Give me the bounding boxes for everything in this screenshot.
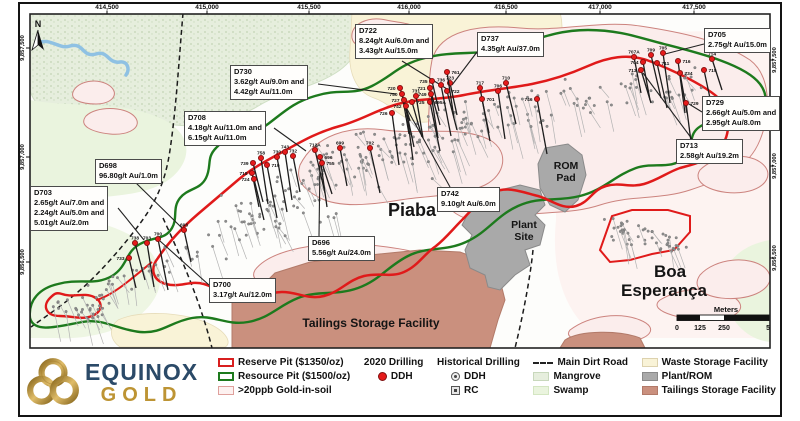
ddh-2020-label: 698 [180, 223, 188, 229]
ddh-2020-dot-715 [701, 67, 706, 72]
ddh-2020-label: 707A [628, 50, 640, 56]
ddh-2020-label: 727 [391, 98, 399, 104]
ddh-2020-label: 712A [309, 143, 321, 149]
callout-assay-line: 9.10g/t Au/6.0m [441, 199, 496, 209]
ddh-2020-label: 715 [709, 68, 717, 74]
reserve-swatch-icon [218, 358, 234, 367]
axis-label-easting: 414,500 [95, 4, 119, 11]
axis-label-easting: 416,000 [397, 4, 421, 11]
legend-column: Main Dirt RoadMangroveSwamp [533, 357, 628, 396]
axis-label-easting: 417,500 [682, 4, 706, 11]
ddh-2020-label: 706 [494, 84, 502, 90]
ddh-2020-dot-719 [264, 162, 269, 167]
north-label: N [35, 19, 42, 29]
legend-item-reserve: Reserve Pit ($1350/oz) [218, 357, 350, 368]
ddh-2020-dot-726 [389, 110, 394, 115]
ddh-2020-label: 749 [418, 92, 426, 98]
drilling-map-figure: 7337387037006987397587197187247437307327… [0, 0, 800, 421]
callout-hole-id: D713 [680, 141, 739, 151]
callout-D703: D7032.65g/t Au/7.0m and2.24g/t Au/5.0m a… [30, 186, 108, 231]
callout-assay-line: 4.42g/t Au/11.0m [234, 87, 304, 97]
road-swatch-icon [533, 362, 553, 364]
place-label: Tailings Storage Facility [302, 316, 439, 330]
scalebar-tick: 250 [718, 325, 730, 332]
callout-hole-id: D696 [312, 238, 371, 248]
ddh-2020-dot-720 [397, 85, 402, 90]
callout-D729: D7292.66g/t Au/5.0m and2.95g/t Au/8.0m [702, 96, 780, 131]
legend-item-histddh: DDH [451, 371, 520, 382]
callout-D698: D69896.80g/t Au/1.0m [95, 159, 162, 184]
callout-D705: D7052.75g/t Au/15.0m [704, 28, 771, 53]
callout-hole-id: D730 [234, 67, 304, 77]
ddh-2020-dot-735 [429, 78, 434, 83]
logo-wordmark: EQUINOX GOLD [85, 361, 198, 405]
ddh-2020-dot-716 [675, 58, 680, 63]
ddh-2020-dot-725 [409, 99, 414, 104]
callout-assay-line: 3.43g/t Au/15.0m [359, 46, 429, 56]
ddh-2020-dot-742 [403, 103, 408, 108]
legend-item-soil: >20ppb Gold-in-soil [218, 385, 350, 396]
ddh-2020-label: 726 [379, 111, 387, 117]
callout-hole-id: D737 [481, 34, 540, 44]
ddh-2020-label: 711 [662, 61, 670, 67]
callout-assay-line: 3.17g/t Au/12.0m [213, 290, 272, 300]
axis-label-northing: 9,857,000 [20, 144, 26, 170]
callout-assay-line: 2.24g/t Au/5.0m and [34, 208, 104, 218]
ddh-2020-label: 705 [659, 46, 667, 52]
ddh-2020-dot-739 [250, 160, 255, 165]
swamp-swatch-icon [533, 386, 549, 395]
ddh-2020-label: 710 [502, 76, 510, 82]
place-label: Boa [654, 262, 687, 281]
ddh-2020-dot-718 [249, 170, 254, 175]
callout-hole-id: D742 [441, 189, 496, 199]
callout-hole-id: D729 [706, 98, 776, 108]
legend-header: 2020 Drilling [364, 357, 423, 368]
ddh-2020-label: 735 [419, 79, 427, 85]
ddh-2020-label: 696 [325, 155, 333, 161]
scalebar-title: Meters [714, 305, 738, 314]
place-label: Plant [511, 219, 537, 231]
legend-item-ddh2020: DDH [378, 371, 423, 382]
ddh-2020-dot-721 [427, 85, 432, 90]
callout-D722: D7228.24g/t Au/6.0m and3.43g/t Au/15.0m [355, 24, 433, 59]
callout-hole-id: D705 [708, 30, 767, 40]
ddh-2020-dot-761 [444, 69, 449, 74]
callout-hole-id: D708 [188, 113, 262, 123]
legend-label: Plant/ROM [662, 371, 713, 382]
callout-assay-line: 5.56g/t Au/24.0m [312, 248, 371, 258]
legend-item-mangrove: Mangrove [533, 371, 628, 382]
callout-assay-line: 2.65g/t Au/7.0m and [34, 198, 104, 208]
ddh-2020-dot-701 [479, 96, 484, 101]
callout-hole-id: D700 [213, 280, 272, 290]
ddh-2020-label: 758 [257, 151, 265, 157]
callout-assay-line: 6.15g/t Au/11.0m [188, 133, 262, 143]
place-label: Esperança [621, 281, 708, 300]
ddh-2020-dot-750 [399, 91, 404, 96]
ddh-2020-label: 700 [154, 232, 162, 238]
ddh-2020-label: 733 [116, 256, 124, 262]
axis-label-northing: 9,857,500 [20, 35, 26, 61]
ddh-2020-label: 699 [336, 141, 344, 147]
callout-hole-id: D703 [34, 188, 104, 198]
logo-rings-icon [26, 356, 80, 410]
ddh-2020-dot-727 [401, 97, 406, 102]
callout-assay-line: 3.62g/t Au/9.0m and [234, 77, 304, 87]
ddh-2020-label: 709 [647, 48, 655, 54]
plant-swatch-icon [642, 372, 658, 381]
callout-hole-id: D722 [359, 26, 429, 36]
ddh-2020-dot-696 [317, 154, 322, 159]
ddh-2020-label: 713 [628, 68, 636, 74]
legend-label: Resource Pit ($1500/oz) [238, 371, 350, 382]
legend-item-swamp: Swamp [533, 385, 628, 396]
legend-item-resource: Resource Pit ($1500/oz) [218, 371, 350, 382]
callout-D700: D7003.17g/t Au/12.0m [209, 278, 276, 303]
legend-label: Mangrove [553, 371, 600, 382]
legend-column: Waste Storage FacilityPlant/ROMTailings … [642, 357, 776, 396]
ddh-2020-label: 750 [389, 92, 397, 98]
ddh-2020-label: 734 [685, 71, 693, 77]
map-legend: Reserve Pit ($1350/oz)Resource Pit ($150… [218, 357, 776, 396]
ddh-2020-dot-722 [444, 88, 449, 93]
logo-equinox-text: EQUINOX [85, 361, 198, 384]
mangrove-swatch-icon [533, 372, 549, 381]
scalebar-tick: 0 [675, 325, 679, 332]
legend-item-rc: RC [451, 385, 520, 396]
ddh-2020-label: 718 [239, 171, 247, 177]
ddh2020-swatch-icon [378, 372, 387, 381]
legend-label: Reserve Pit ($1350/oz) [238, 357, 344, 368]
callout-D730: D7303.62g/t Au/9.0m and4.42g/t Au/11.0m [230, 65, 308, 100]
callout-assay-line: 5.01g/t Au/2.0m [34, 218, 104, 228]
callout-assay-line: 2.75g/t Au/15.0m [708, 40, 767, 50]
legend-label: DDH [464, 371, 486, 382]
callout-D708: D7084.18g/t Au/11.0m and6.15g/t Au/11.0m [184, 111, 266, 146]
equinox-gold-logo: EQUINOX GOLD [26, 356, 198, 410]
ddh-2020-dot-733 [126, 255, 131, 260]
soil-swatch-icon [218, 386, 234, 395]
waste-swatch-icon [642, 358, 658, 367]
ddh-2020-label: 761 [452, 70, 460, 76]
callout-assay-line: 4.35g/t Au/37.0m [481, 44, 540, 54]
ddh-2020-dot-724 [251, 176, 256, 181]
ddh-2020-label: 732 [289, 149, 297, 155]
ddh-2020-label: 739 [240, 161, 248, 167]
ddh-2020-label: 717 [476, 81, 484, 87]
ddh-2020-dot-755 [319, 160, 324, 165]
ddh-2020-label: 722 [452, 89, 460, 95]
legend-column: Historical DrillingDDHRC [437, 357, 520, 396]
ddh-2020-label: 746 [524, 97, 532, 103]
logo-gold-text: GOLD [85, 385, 198, 405]
ddh-2020-label: 755 [327, 161, 335, 167]
place-label: ROM [554, 160, 579, 172]
legend-column: 2020 DrillingDDH [364, 357, 423, 396]
ddh-2020-label: 729 [691, 101, 699, 107]
histddh-swatch-icon [451, 372, 460, 381]
ddh-2020-dot-749 [428, 91, 433, 96]
scalebar-tick: 125 [694, 325, 706, 332]
callout-D737: D7374.35g/t Au/37.0m [477, 32, 544, 57]
legend-label: DDH [391, 371, 413, 382]
ddh-2020-dot-729 [683, 100, 688, 105]
ddh-2020-label: 721 [417, 86, 425, 92]
callout-D713: D7132.58g/t Au/19.2m [676, 139, 743, 164]
legend-item-tailings: Tailings Storage Facility [642, 385, 776, 396]
legend-label: >20ppb Gold-in-soil [238, 385, 332, 396]
ddh-2020-dot-746 [534, 96, 539, 101]
place-label: Piaba [388, 200, 437, 220]
callout-assay-line: 2.95g/t Au/8.0m [706, 118, 776, 128]
ddh-2020-dot-711 [654, 60, 659, 65]
ddh-2020-label: 704 [630, 60, 638, 66]
ddh-2020-label: 738 [131, 236, 139, 242]
rc-swatch-icon [451, 386, 460, 395]
ddh-2020-label: 742 [393, 104, 401, 110]
ddh-2020-dot-704 [640, 59, 645, 64]
ddh-2020-dot-713 [638, 67, 643, 72]
callout-assay-line: 2.66g/t Au/5.0m and [706, 108, 776, 118]
callout-assay-line: 8.24g/t Au/6.0m and [359, 36, 429, 46]
callout-D742: D7429.10g/t Au/6.0m [437, 187, 500, 212]
legend-item-road: Main Dirt Road [533, 357, 628, 368]
callout-assay-line: 4.18g/t Au/11.0m and [188, 123, 262, 133]
legend-header: Historical Drilling [437, 357, 520, 368]
axis-label-northing: 9,856,500 [20, 249, 26, 275]
legend-column: Reserve Pit ($1350/oz)Resource Pit ($150… [218, 357, 350, 396]
resource-swatch-icon [218, 372, 234, 381]
ddh-2020-label: 720 [387, 86, 395, 92]
legend-label: Tailings Storage Facility [662, 385, 776, 396]
callout-assay-line: 2.58g/t Au/19.2m [680, 151, 739, 161]
ddh-2020-label: 716 [683, 59, 691, 65]
legend-label: RC [464, 385, 478, 396]
place-label: Site [514, 231, 533, 243]
ddh-2020-label: 701 [487, 97, 495, 103]
callout-hole-id: D698 [99, 161, 158, 171]
ddh-2020-label: 702 [366, 141, 374, 147]
ddh-2020-label: 724 [241, 177, 249, 183]
legend-label: Swamp [553, 385, 588, 396]
ddh-2020-label: 730 [273, 150, 281, 156]
axis-label-easting: 415,000 [195, 4, 219, 11]
ddh-2020-dot-734 [677, 70, 682, 75]
axis-label-easting: 416,500 [494, 4, 518, 11]
ddh-2020-label: 703 [143, 236, 151, 242]
scalebar-tick: 500 [766, 325, 778, 332]
legend-item-plant: Plant/ROM [642, 371, 776, 382]
legend-label: Waste Storage Facility [662, 357, 768, 368]
place-label: Pad [556, 172, 575, 184]
ddh-2020-label: 736 [437, 78, 445, 84]
tailings-swatch-icon [642, 386, 658, 395]
axis-label-easting: 415,500 [297, 4, 321, 11]
legend-label: Main Dirt Road [557, 357, 628, 368]
axis-label-easting: 417,000 [588, 4, 612, 11]
legend-item-waste: Waste Storage Facility [642, 357, 776, 368]
callout-D696: D6965.56g/t Au/24.0m [308, 236, 375, 261]
callout-assay-line: 96.80g/t Au/1.0m [99, 171, 158, 181]
